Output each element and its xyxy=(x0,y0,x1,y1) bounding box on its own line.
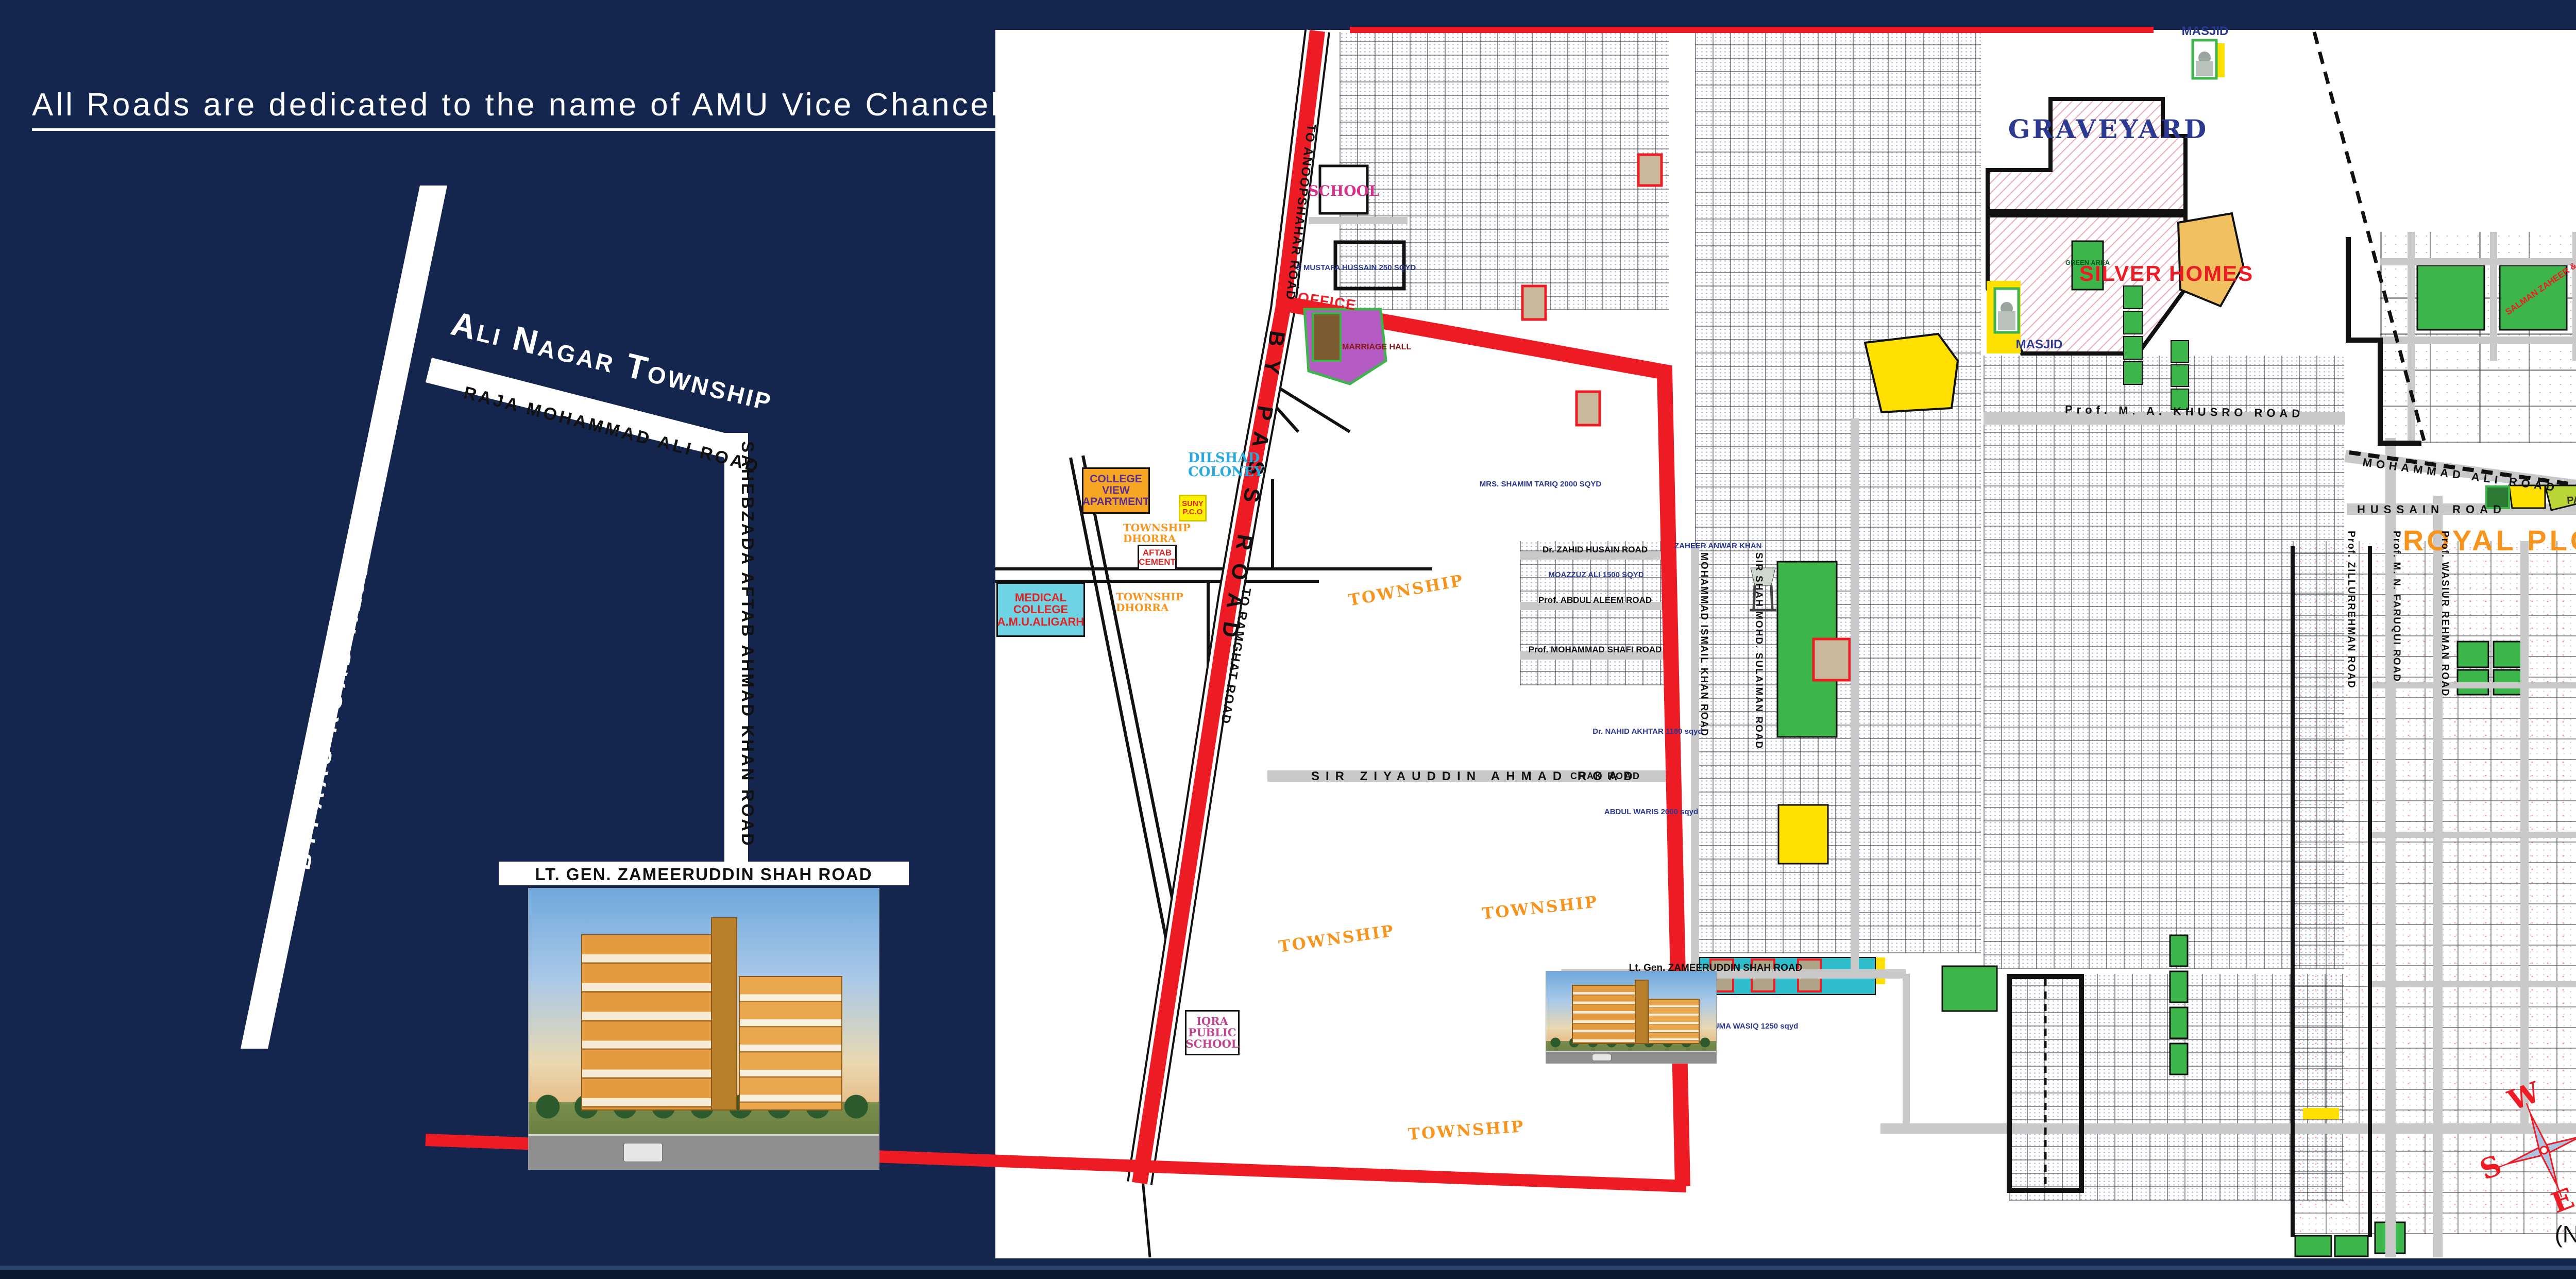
masjid-icon xyxy=(1995,289,2019,332)
aftab-cement-box: AFTAB CEMENT xyxy=(1138,545,1177,570)
masjid-label: MASJID xyxy=(2016,338,2063,351)
render-tower xyxy=(711,917,738,1110)
iqra-public-school-box: IQRA PUBLIC SCHOOL xyxy=(1185,1010,1240,1055)
render-tower xyxy=(1635,980,1649,1044)
yellow-plot xyxy=(1865,334,1958,412)
park-label: PARK xyxy=(2567,493,2576,507)
school-label: SCHOOL xyxy=(1308,182,1379,199)
svg-text:HUMA WASIQ 1250 sqyd: HUMA WASIQ 1250 sqyd xyxy=(1708,1022,1798,1031)
marriage-hall-label: MARRIAGE HALL xyxy=(1342,343,1411,351)
svg-text:MOAZZUZ ALI 1500 SQYD: MOAZZUZ ALI 1500 SQYD xyxy=(1548,570,1643,579)
svg-text:ABDUL WARIS 2000 sqyd: ABDUL WARIS 2000 sqyd xyxy=(1604,807,1698,816)
render-building-left xyxy=(1572,985,1637,1044)
bypass-road-map-label: BY PASS ROAD xyxy=(1215,329,1290,652)
ltgen-road-label: LT. GEN. ZAMEERUDDIN SHAH ROAD xyxy=(535,865,872,884)
render-road xyxy=(1546,1051,1716,1063)
shafi-road-label: Prof. MOHAMMAD SHAFI ROAD xyxy=(1529,645,1662,654)
hussain-road-label: HUSSAIN ROAD xyxy=(2357,503,2506,516)
sulaiman-road-label: SIR SHAH MOHD. SULAIMAN ROAD xyxy=(1753,552,1764,749)
render-building-right xyxy=(739,976,842,1110)
green-plot xyxy=(1942,966,1997,1011)
compass-rose-icon: N W S E xyxy=(2476,1075,2576,1220)
apartment-render-photo-inset xyxy=(1546,971,1717,1064)
svg-text:S MUSTAFA HUSSAIN 250 SQYD: S MUSTAFA HUSSAIN 250 SQYD xyxy=(1296,263,1416,272)
render-building-left xyxy=(581,934,713,1110)
wasiur-road-label: Prof. WASIUR REHMAN ROAD xyxy=(2439,531,2450,697)
render-car xyxy=(623,1143,663,1162)
nts-label: (N.T.S) xyxy=(2527,1220,2576,1248)
compass-e: E xyxy=(2547,1181,2576,1220)
graveyard-label: GRAVEYARD xyxy=(2008,114,2209,144)
township-dhorra-label: TOWNSHIP DHORRA xyxy=(1123,523,1172,544)
compass-w: W xyxy=(2503,1075,2545,1117)
bypass-road-label: BYPAAS ROAD ALIGARH xyxy=(288,489,388,872)
dilshad-coloney-label: DILSHAD COLONEY xyxy=(1188,451,1250,480)
sahebzada-road-label: SAHEBZADA AFTAB AHMAD KHAN ROAD xyxy=(738,441,757,848)
suny-pco-box: SUNY P.C.O xyxy=(1179,495,1207,521)
chak-road-label: CHAK ROAD xyxy=(1570,771,1641,781)
zahid-road-label: Dr. ZAHID HUSAIN ROAD xyxy=(1543,545,1648,554)
masjid-icon xyxy=(2193,40,2216,78)
aleem-road-label: Prof. ABDUL ALEEM ROAD xyxy=(1538,595,1652,605)
zillur-road-label: Prof. ZILLURREHMAN ROAD xyxy=(2346,531,2357,689)
poster-canvas: All Roads are dedicated to the name of A… xyxy=(0,0,2576,1279)
svg-text:MRS. SHAMIM TARIQ 2000 SQYD: MRS. SHAMIM TARIQ 2000 SQYD xyxy=(1480,480,1602,489)
college-view-apartment-box: COLLEGE VIEW APARTMENT xyxy=(1082,467,1150,514)
apartment-render-photo xyxy=(528,888,879,1170)
map-vector-overlay: N W S E BYPAAS ROAD ALIGARH Ali Nagar To… xyxy=(0,0,2576,1279)
medical-college-box: MEDICAL COLLEGE A.M.U.ALIGARH xyxy=(996,582,1085,637)
silver-homes-label: SILVER HOMES xyxy=(2079,261,2253,285)
royal-ploting-label: ROYAL PLOTING xyxy=(2403,524,2576,557)
bottom-strip xyxy=(0,1270,2576,1279)
yellow-plot xyxy=(2303,1108,2339,1119)
render-road xyxy=(529,1134,879,1169)
svg-text:ZAHEER ANWAR KHAN: ZAHEER ANWAR KHAN xyxy=(1674,542,1761,550)
masjid-label: MASJID xyxy=(2182,24,2229,38)
yellow-plot xyxy=(1778,805,1828,864)
ismail-road-label: MOHAMMAD ISMAIL KHAN ROAD xyxy=(1699,552,1709,737)
silver-homes-plot xyxy=(2178,213,2243,306)
bottom-divider xyxy=(0,1266,2576,1270)
svg-text:Dr. NAHID AKHTAR 1180 sqyd: Dr. NAHID AKHTAR 1180 sqyd xyxy=(1592,727,1702,736)
compass-s: S xyxy=(2476,1148,2506,1186)
faruqui-road-label: Prof. M. N. FARUQUI ROAD xyxy=(2391,531,2402,682)
render-building-right xyxy=(1648,999,1700,1044)
render-car xyxy=(1592,1054,1612,1061)
township-dhorra-label: TOWNSHIP DHORRA xyxy=(1116,592,1165,613)
